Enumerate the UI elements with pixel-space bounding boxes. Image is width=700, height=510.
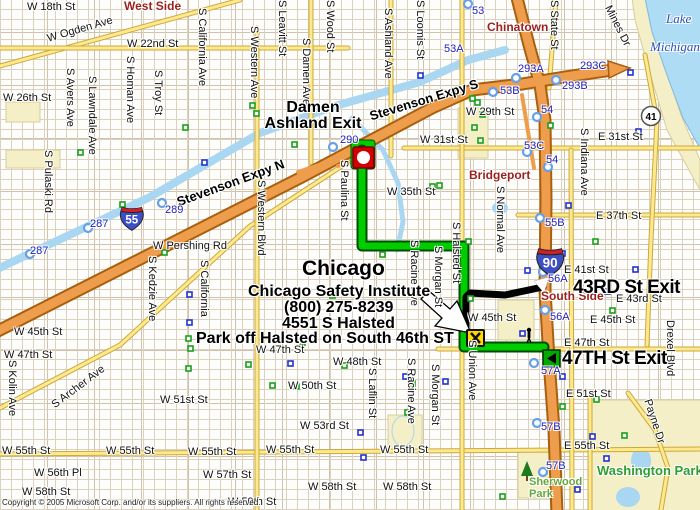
street-label: W 31st St [420, 135, 468, 146]
exit-number: 293B [562, 81, 588, 92]
street-label: S Kolin Ave [6, 360, 17, 416]
exit-number: 287 [90, 219, 108, 230]
destination-phone: (800) 275-8239 [284, 300, 393, 316]
exit-number: 53B [500, 86, 520, 97]
ramp-circle-markers [26, 0, 560, 476]
exit-number: 53C [524, 141, 544, 152]
street-label: W 55th St [266, 445, 314, 456]
street-label: E 37th St [596, 211, 641, 222]
street-label: S Lawndale Ave [86, 76, 97, 155]
street-label: W 58th St [22, 487, 70, 498]
street-label: W 45th St [14, 327, 62, 338]
street-label: S Ashland Ave [382, 8, 393, 79]
destination-name: Chicago Safety Institute [248, 284, 430, 300]
exit43-label: 43RD St Exit [573, 278, 680, 297]
street-label: W 29th St [466, 107, 514, 118]
damen-exit-line2: Ashland Exit [233, 116, 393, 132]
damen-ashland-exit-label: Damen Ashland Exit [233, 100, 393, 132]
exit-number: 53A [444, 44, 464, 55]
street-label: S Avers Ave [64, 68, 75, 127]
street-label: E 41st St [564, 265, 609, 276]
exit-number: 55B [545, 218, 565, 229]
street-label: W 26th St [3, 93, 51, 104]
street-label: E 45th St [590, 315, 635, 326]
exit-number: 57B [541, 422, 561, 433]
street-label: W 22nd St [127, 39, 178, 50]
exit-number: 56A [550, 312, 570, 323]
street-label: W 51st St [160, 395, 208, 406]
district-label: West Side [124, 0, 181, 12]
street-label: S Damen Ave [300, 38, 311, 105]
street-label: S Pulaski Rd [42, 150, 53, 213]
street-label: S Halsted St [450, 222, 461, 283]
street-label: W 45th St [468, 313, 516, 324]
street-label: S Indiana Ave [578, 128, 589, 196]
destination-parking-note: Park off Halsted on South 46th ST [196, 331, 454, 347]
map-graphics: 55 90 41 [0, 0, 700, 510]
street-label: E 31st St [598, 132, 643, 143]
street-label: W 48th St [333, 357, 381, 368]
street-label: S Morgan St [432, 246, 443, 307]
street-label: S Union Ave [466, 340, 477, 400]
street-label: W 50th St [288, 381, 336, 392]
street-label: W 35th St [387, 187, 435, 198]
street-label: W 55th St [2, 446, 50, 457]
street-label: W 58th St [383, 482, 431, 493]
route-start-icon-dot [357, 151, 370, 164]
street-label: S Troy St [152, 70, 163, 115]
street-label: S Laflin St [366, 368, 377, 418]
street-label: W 56th Pl [34, 468, 82, 479]
exit-number: 293C [580, 61, 606, 72]
svg-text:41: 41 [645, 112, 657, 123]
street-label: W 55th St [380, 445, 428, 456]
map-canvas[interactable]: 55 90 41 W 18th St W 22nd St W 26th St W… [0, 0, 700, 510]
street-label: S Western Ave [248, 26, 259, 98]
damen-exit-line1: Damen [233, 100, 393, 116]
copyright-notice: Copyright © 2005 Microsoft Corp. and/or … [2, 499, 260, 507]
svg-text:55: 55 [125, 214, 138, 226]
street-label: S Racine Ave [405, 358, 416, 424]
lake-label: Michigan [650, 40, 700, 53]
street-label: S Loomis St [414, 0, 425, 59]
exit-number: 54 [546, 155, 558, 166]
street-label: E 51st St [566, 389, 611, 400]
exit-number: 54 [541, 105, 553, 116]
city-label: Chicago [302, 258, 385, 279]
lake-label: Lake [666, 12, 691, 25]
street-label: W 55th St [106, 446, 154, 457]
street-label: S California Ave [196, 8, 207, 86]
exit-number: 293A [518, 64, 544, 75]
park-label: Washington Park [597, 464, 700, 477]
street-label: W Pershing Rd [153, 241, 227, 252]
exit47-label: 47TH St Exit [562, 349, 667, 368]
street-label: S Normal Ave [494, 186, 505, 253]
street-label: S Kedzie Ave [146, 256, 157, 321]
exit-number: 57A [541, 366, 561, 377]
exit-number: 289 [165, 205, 183, 216]
exit-number: 290 [340, 135, 358, 146]
exit-number: 57B [546, 461, 566, 472]
street-label: S Paulina St [338, 160, 349, 221]
us41-shield: 41 [642, 107, 661, 126]
street-label: W 18th St [27, 2, 75, 13]
district-label: Chinatown [487, 21, 548, 33]
street-label: S Morgan St [429, 364, 440, 425]
street-label: S Leavitt St [276, 0, 287, 56]
exit-number: 287 [30, 246, 48, 257]
street-label: S Wood St [324, 0, 335, 52]
street-label: E 55th St [564, 441, 609, 452]
street-label: W 58th St [308, 482, 356, 493]
expressway-end-arrow [608, 61, 630, 78]
i55-shield: 55 [120, 207, 143, 230]
street-label: S State St [548, 0, 559, 50]
street-label: S California [198, 260, 209, 317]
district-label: Bridgeport [469, 169, 530, 181]
street-label: W 57th St [203, 470, 251, 481]
svg-text:90: 90 [543, 256, 558, 271]
street-label: S Western Blvd [255, 180, 266, 256]
street-label: W 53rd St [300, 421, 349, 432]
exit-number: 53 [472, 6, 484, 17]
park-label: Sherwood [529, 477, 582, 488]
exit-number: 56A [548, 274, 568, 285]
street-label: S Homan Ave [124, 56, 135, 123]
park-label: Park [529, 489, 553, 500]
street-label: W 55th St [188, 447, 236, 458]
